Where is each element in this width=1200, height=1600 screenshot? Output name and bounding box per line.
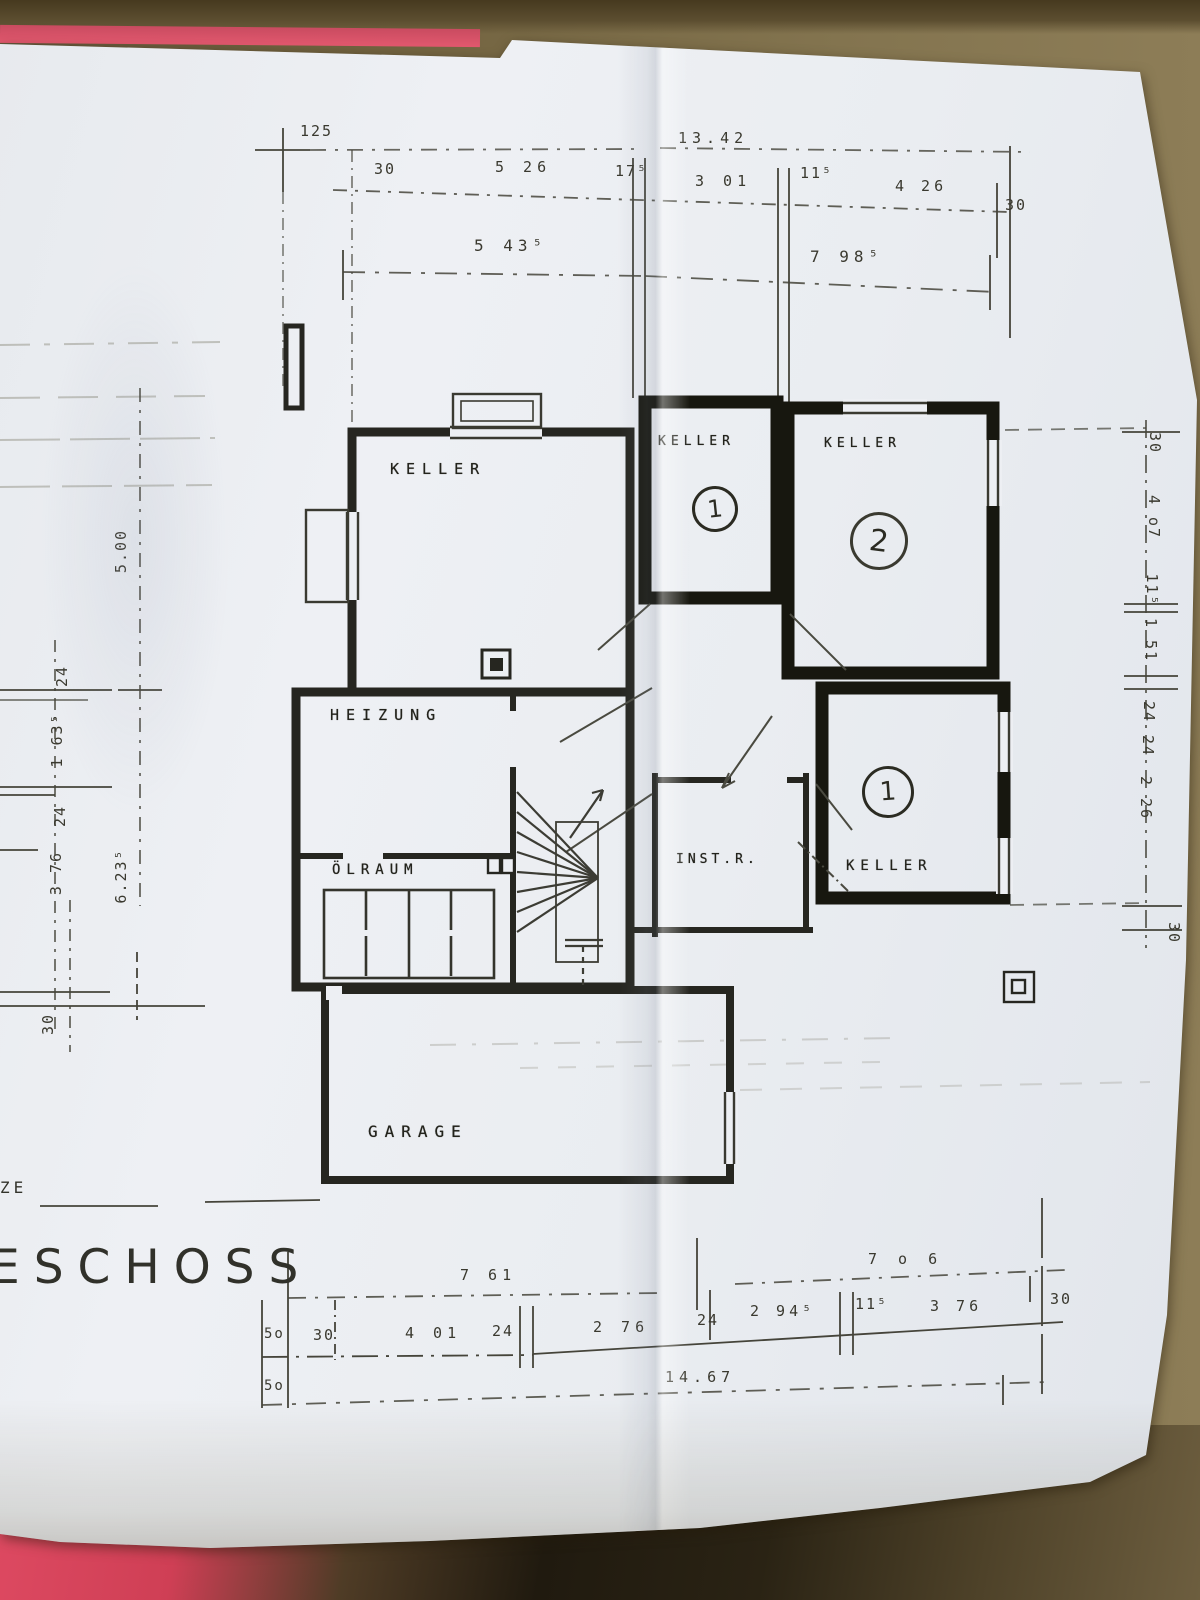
dim-bottom-total-7o6: 7 o 6 — [868, 1250, 943, 1268]
dim-bottom-115: 11⁵ — [855, 1295, 888, 1313]
dim-right-24a: 24 — [1140, 701, 1158, 723]
dim-left-6235: 6.23⁵ — [112, 848, 130, 903]
dim-right-4o7: 4 o7 — [1145, 495, 1163, 539]
dim-top-total-5435: 5 43⁵ — [474, 236, 547, 255]
dim-top-30l: 30 — [374, 160, 396, 178]
room-label-keller-left: KELLER — [390, 460, 486, 478]
bottom-dimension-lines — [40, 1198, 1065, 1408]
dim-bottom-30l: 30 — [313, 1326, 335, 1344]
dim-right-151: 1 51 — [1142, 618, 1160, 662]
dim-top-115: 11⁵ — [800, 164, 833, 182]
paper-sheet-wrap: 125 13.42 30 5 26 17⁵ 3 01 11⁵ 4 26 30 5… — [0, 0, 1200, 1600]
dim-left-30: 30 — [39, 1013, 57, 1035]
floor-title-fragment: ESCHOSS — [0, 1240, 312, 1295]
dim-top-426: 4 26 — [895, 177, 947, 195]
photo-of-floorplan: 125 13.42 30 5 26 17⁵ 3 01 11⁵ 4 26 30 5… — [0, 0, 1200, 1600]
dim-right-30b: 30 — [1165, 922, 1183, 944]
dim-right-226: 2 26 — [1137, 776, 1155, 820]
dim-left-376: 3 76 — [47, 851, 65, 895]
badge-number: 1 — [706, 494, 724, 523]
dim-bottom-24a: 24 — [492, 1322, 514, 1340]
dim-bottom-401: 4 01 — [405, 1324, 461, 1342]
room-label-oelraum: ÖLRAUM — [332, 862, 419, 878]
paper-fold-crease — [618, 40, 690, 1530]
dim-top-total-7985: 7 98⁵ — [810, 247, 883, 266]
paper-bottom-curl-shadow — [0, 1400, 1200, 1550]
dim-bottom-376: 3 76 — [930, 1297, 982, 1315]
staircase — [517, 790, 603, 985]
room-label-garage: GARAGE — [368, 1122, 468, 1141]
dim-bottom-24b: 24 — [697, 1311, 719, 1329]
chimney-icon — [482, 650, 1034, 1002]
dim-bottom-5o-b: 5o — [264, 1378, 285, 1394]
dim-top-526: 5 26 — [495, 158, 551, 176]
badge-number: 1 — [879, 776, 898, 807]
paper-wrinkle-shading — [40, 260, 230, 820]
badge-number: 2 — [867, 522, 890, 559]
dim-top-125: 125 — [300, 122, 333, 140]
bold-walls — [645, 402, 1004, 898]
room-label-heizung: HEIZUNG — [330, 706, 442, 724]
dim-right-24b: 24 — [1139, 735, 1157, 757]
dim-top-301: 3 01 — [695, 172, 751, 190]
walls — [286, 326, 810, 1180]
dim-bottom-30r: 30 — [1050, 1290, 1072, 1308]
dim-bottom-2945: 2 94⁵ — [750, 1302, 815, 1320]
paper-sheet: 125 13.42 30 5 26 17⁵ 3 01 11⁵ 4 26 30 5… — [0, 0, 1200, 1600]
edge-text-fragment: ZE — [0, 1178, 27, 1197]
room-label-keller-lower: KELLER — [846, 858, 933, 874]
dim-bottom-total-761: 7 61 — [460, 1266, 516, 1284]
dim-right-30a: 30 — [1146, 432, 1164, 454]
dim-right-115: 11⁵ — [1143, 573, 1161, 606]
room-label-keller-right: KELLER — [824, 436, 901, 451]
dim-bottom-5o-a: 5o — [264, 1326, 285, 1342]
oil-tanks — [324, 890, 494, 978]
dim-top-30r: 30 — [1005, 196, 1027, 214]
